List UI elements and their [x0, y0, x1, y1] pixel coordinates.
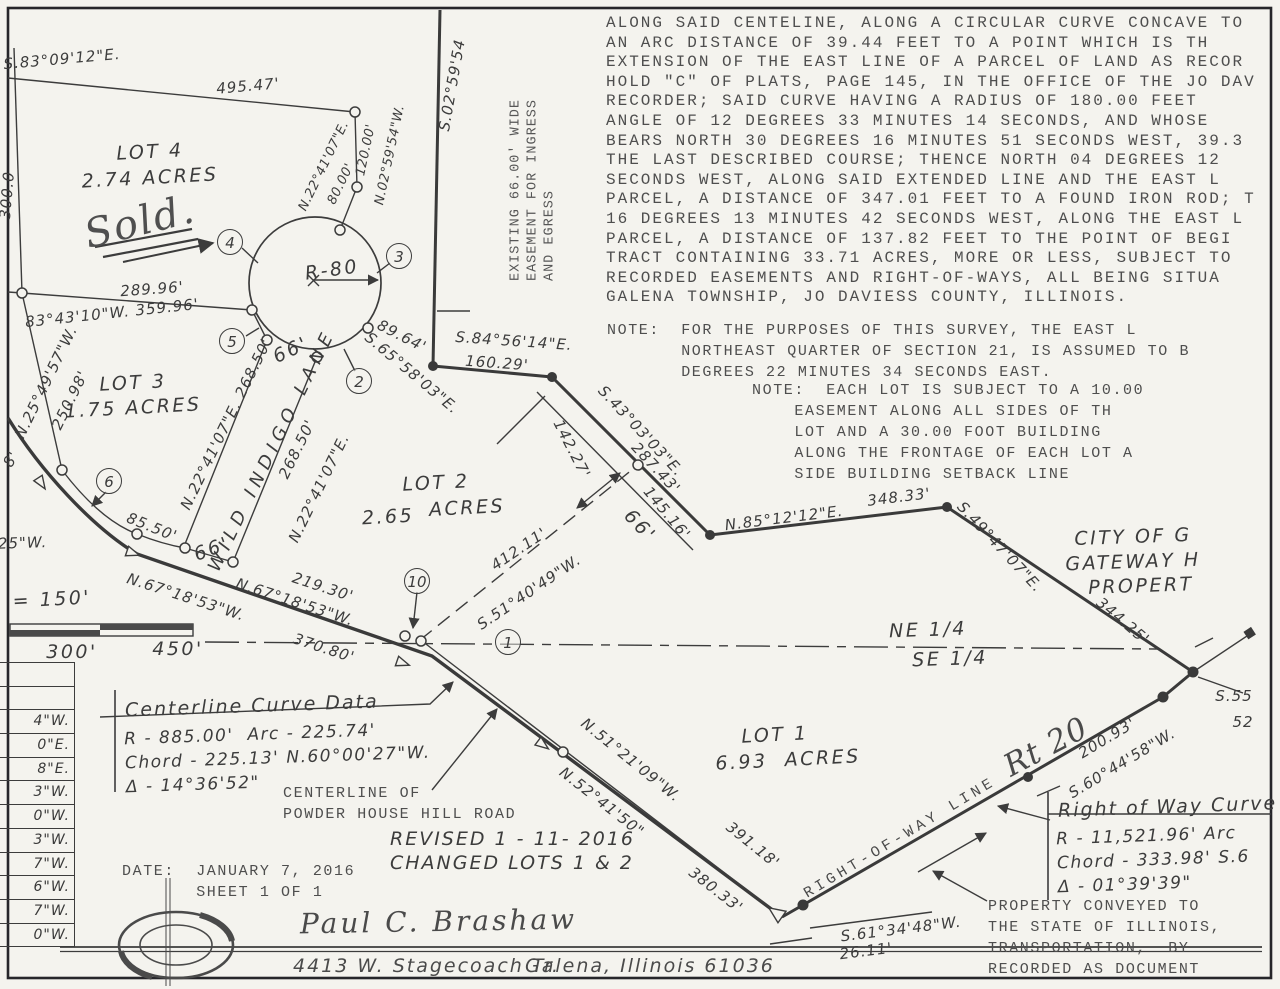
plat-label: SE 1/4: [912, 647, 988, 672]
plat-label: 412.11': [488, 524, 551, 574]
plat-label: CITY OF G: [1074, 524, 1192, 550]
plat-label: 380.33': [685, 863, 746, 916]
plat-label: LOT 1: [741, 722, 809, 747]
survey-plat-page: ALONG SAID CENTELINE, ALONG A CIRCULAR C…: [0, 0, 1280, 989]
plat-label: S.84°56'14"E.: [455, 328, 573, 354]
plat-label: 120.00': [353, 123, 379, 178]
plat-label: Sold.: [80, 186, 200, 258]
plat-label: 6: [96, 468, 122, 494]
plat-label: LOT 4: [116, 139, 184, 164]
plat-label: 1: [495, 629, 521, 655]
plat-label: 391.18': [723, 818, 784, 872]
plat-label: 85.50': [124, 509, 180, 546]
plat-label: 450': [152, 638, 204, 660]
plat-label: " = 150': [0, 586, 92, 613]
plat-label: S.83°09'12"E.: [3, 45, 121, 73]
plat-label: 2: [346, 368, 372, 394]
plat-label: 83°43'10"W. 359.96': [24, 295, 199, 331]
plat-label: '25"W.: [0, 533, 48, 553]
plat-label: S.61°34'48"W.: [840, 913, 963, 946]
plat-label: LOT 3: [99, 370, 167, 395]
plat-label: 300': [46, 641, 98, 663]
plat-label: 3: [386, 243, 412, 269]
plat-label: 4: [217, 229, 243, 255]
plat-label: 370.80': [291, 630, 357, 667]
plat-label: 8': [0, 448, 23, 471]
plat-label: NE 1/4: [889, 618, 968, 643]
plat-label: N.85°12'12"E.: [724, 502, 844, 534]
plat-label: GATEWAY H: [1065, 549, 1201, 576]
plat-label: 1.75 ACRES: [64, 393, 202, 422]
plat-label: RIGHT-OF-WAY LINE: [801, 774, 999, 902]
plat-label: PROPERT: [1088, 573, 1194, 599]
plat-label: 142.27': [550, 417, 595, 482]
plat-label: 495.47': [216, 74, 281, 97]
plat-label: 348.33': [866, 484, 931, 510]
plat-label: EXISTING 66.00' WIDE EASEMENT FOR INGRES…: [508, 99, 559, 281]
plat-label: 2.65: [361, 505, 414, 530]
plat-label: S.49°47'07"E.: [953, 498, 1046, 596]
plat-label: 2.74 ACRES: [81, 163, 219, 192]
plat-label: N.02°59'54"W.: [372, 104, 408, 207]
plat-label: ACRES: [428, 495, 505, 521]
plat-label: 344.25': [1093, 594, 1153, 649]
plat-label: LOT 2: [402, 470, 470, 495]
plat-label: 300.0: [0, 170, 18, 219]
plat-label: S.55: [1215, 687, 1252, 705]
plat-label: 52: [1232, 713, 1253, 731]
plat-label: N.67°18'53"W.: [125, 569, 248, 624]
plat-label: R-80: [304, 255, 361, 284]
plat-label: 10: [404, 568, 430, 594]
plat-label: 160.29': [465, 352, 530, 374]
plat-labels-layer: S.83°09'12"E.495.47'N.22°41'07"E.80.00'1…: [0, 0, 1280, 989]
plat-label: 5: [219, 328, 245, 354]
plat-label: 6.93 ACRES: [715, 745, 861, 775]
plat-label: S.02°59'54: [435, 38, 469, 133]
